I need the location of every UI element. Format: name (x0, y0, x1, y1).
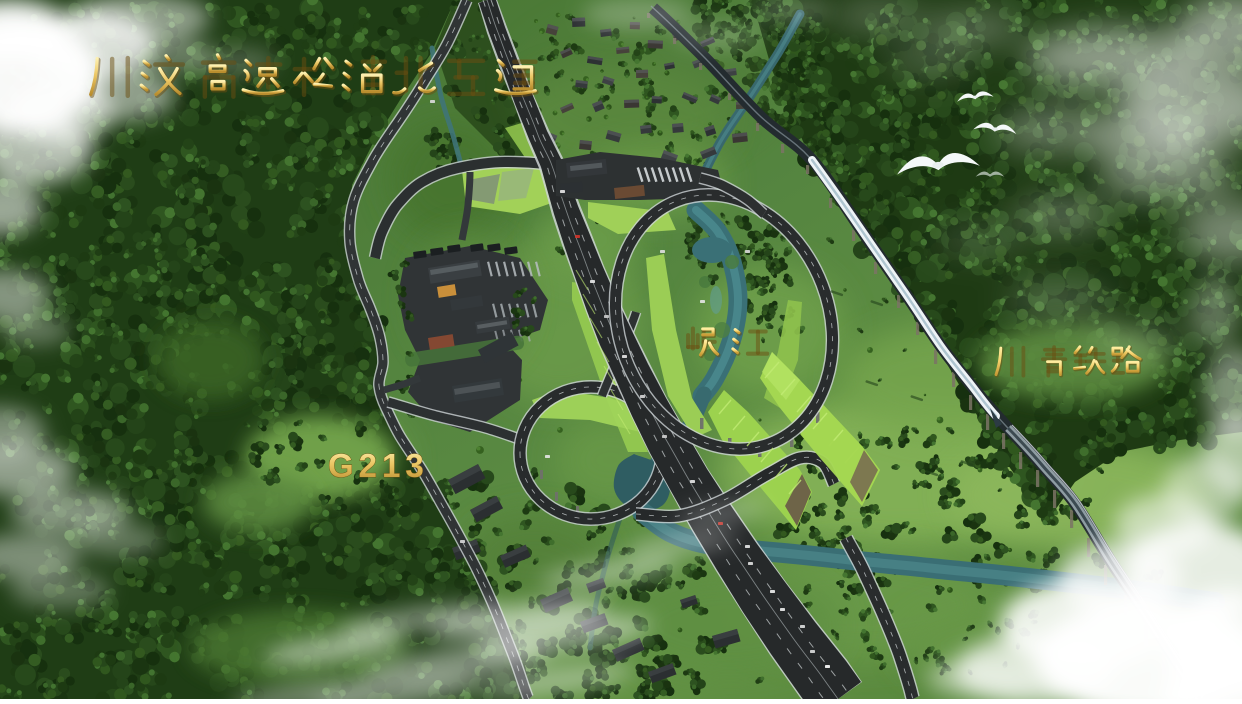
svg-text:G213: G213 (328, 447, 429, 484)
